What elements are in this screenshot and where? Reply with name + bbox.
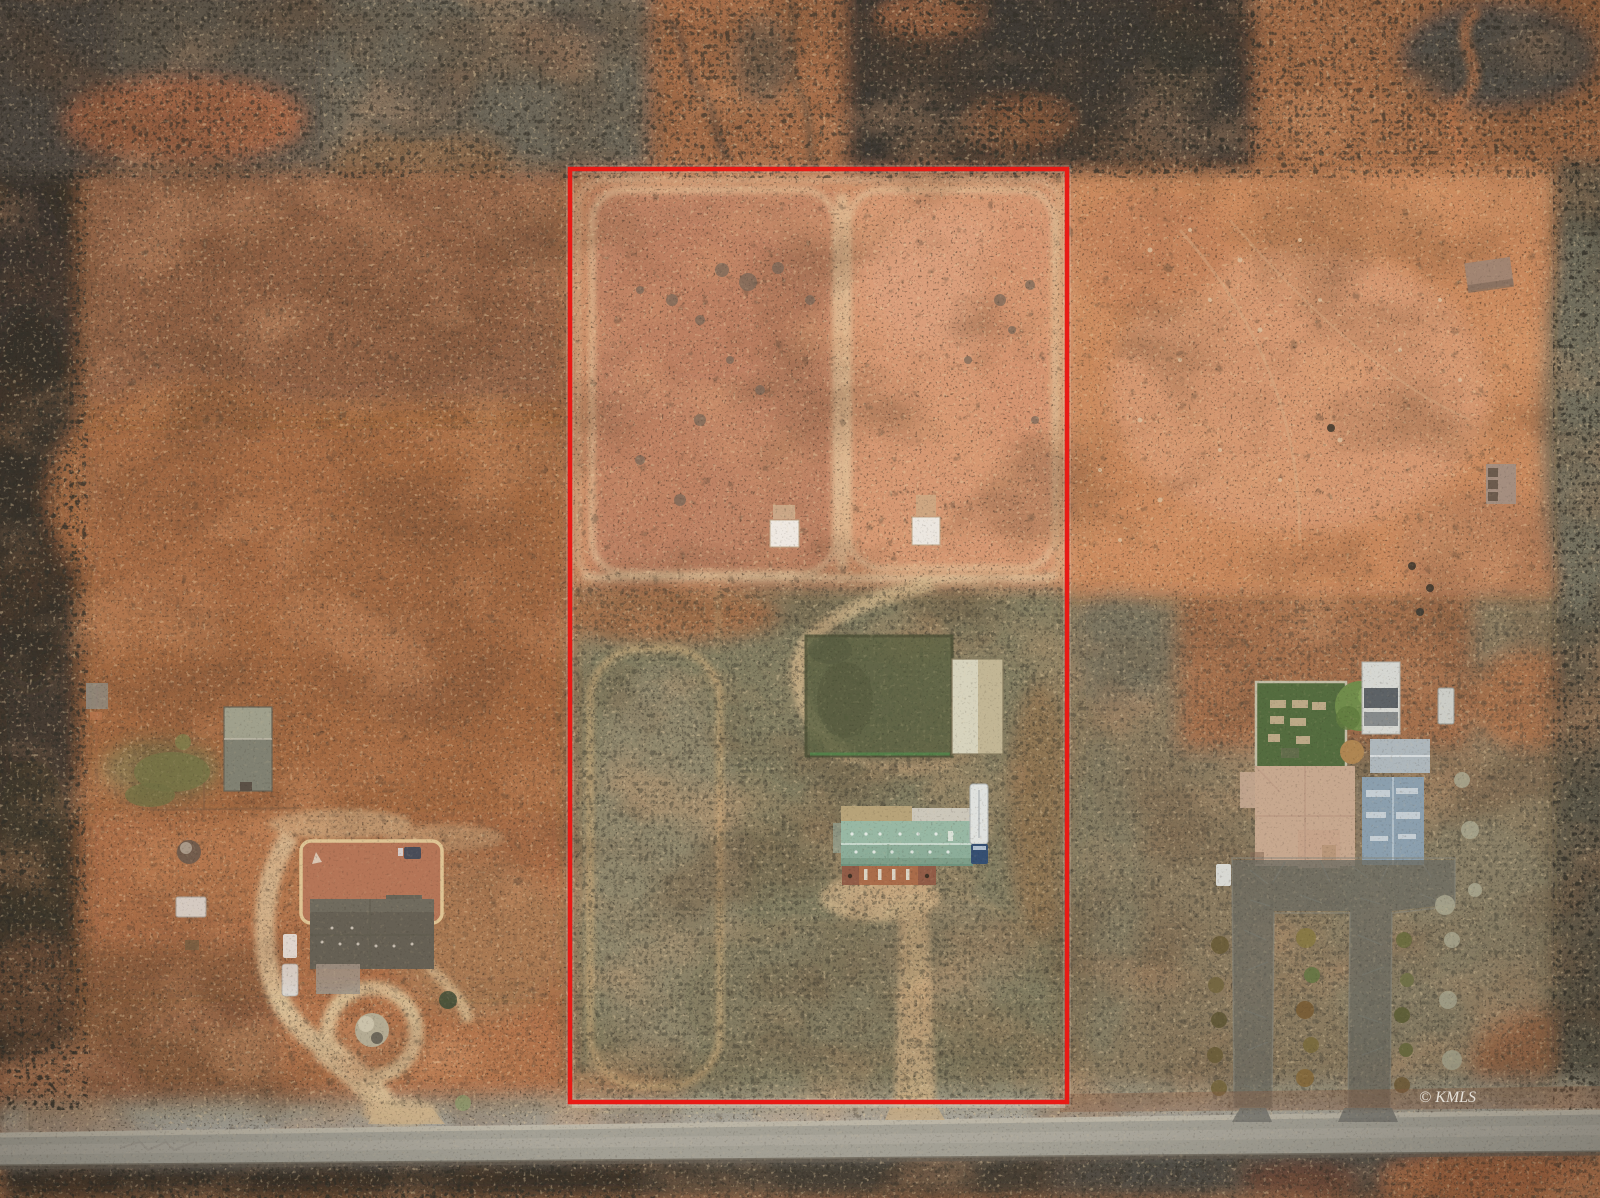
svg-text:© KMLS: © KMLS <box>1419 1089 1476 1106</box>
